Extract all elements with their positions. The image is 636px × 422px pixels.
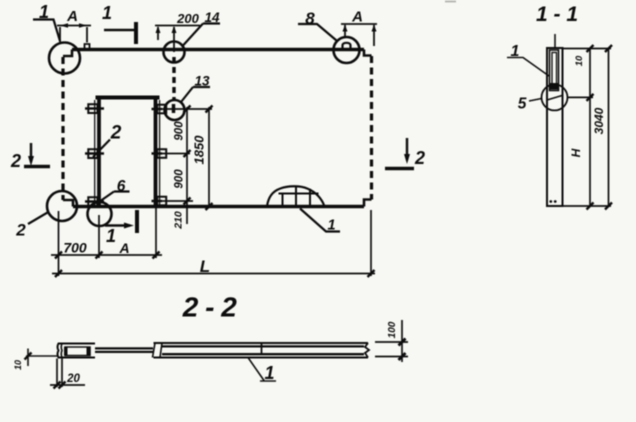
- svg-text:3040: 3040: [592, 107, 606, 134]
- svg-text:2: 2: [414, 148, 425, 168]
- svg-text:H: H: [569, 148, 583, 157]
- svg-text:1: 1: [39, 2, 49, 22]
- svg-text:700: 700: [63, 240, 87, 256]
- svg-text:14: 14: [204, 10, 220, 25]
- svg-text:1 - 1: 1 - 1: [536, 3, 578, 26]
- svg-text:1: 1: [106, 226, 116, 246]
- svg-text:900: 900: [174, 169, 186, 189]
- svg-text:2: 2: [110, 123, 122, 144]
- svg-text:10: 10: [13, 360, 23, 370]
- svg-text:5: 5: [518, 96, 527, 113]
- svg-text:2 - 2: 2 - 2: [182, 292, 237, 323]
- svg-text:1: 1: [102, 3, 112, 23]
- svg-text:1: 1: [511, 43, 520, 60]
- svg-text:A: A: [351, 9, 363, 26]
- svg-text:A: A: [118, 240, 129, 256]
- svg-text:2: 2: [15, 221, 26, 240]
- svg-text:10: 10: [574, 55, 585, 66]
- svg-text:1850: 1850: [192, 135, 207, 165]
- svg-text:20: 20: [66, 373, 80, 385]
- svg-text:8: 8: [305, 9, 315, 28]
- svg-text:900: 900: [174, 121, 186, 141]
- svg-text:1: 1: [264, 363, 274, 383]
- svg-text:13: 13: [194, 74, 210, 89]
- svg-text:100: 100: [387, 321, 398, 338]
- svg-text:L: L: [200, 257, 210, 276]
- svg-text:210: 210: [173, 211, 185, 230]
- svg-text:6: 6: [117, 178, 126, 195]
- svg-text:A: A: [66, 8, 78, 25]
- svg-text:200: 200: [176, 11, 199, 26]
- svg-text:1: 1: [327, 218, 335, 234]
- svg-text:2: 2: [10, 151, 21, 171]
